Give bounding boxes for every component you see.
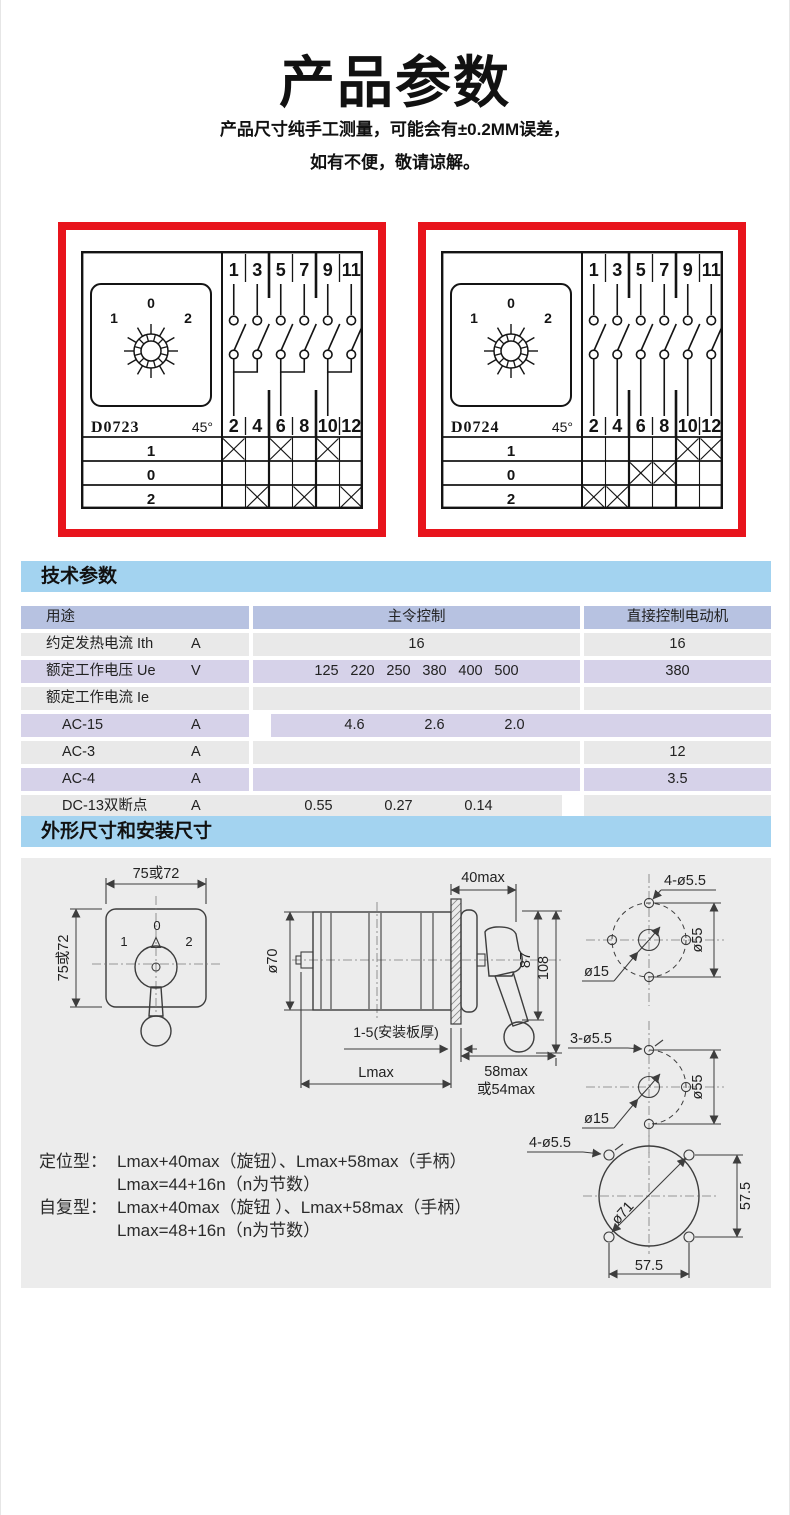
note-formula: Lmax+40max（旋钮）、Lmax+58max（手柄） bbox=[117, 1150, 467, 1173]
top-terminal: 9 bbox=[323, 260, 333, 280]
bottom-terminal: 4 bbox=[252, 416, 262, 436]
note-line-1: 定位型：Lmax+40max（旋钮）、Lmax+58max（手柄） bbox=[39, 1150, 519, 1173]
top-terminal: 11 bbox=[342, 260, 361, 280]
spec-motor-value bbox=[584, 714, 771, 737]
knob-label-0: 0 bbox=[507, 295, 515, 311]
bottom-terminal: 4 bbox=[612, 416, 622, 436]
plate-thickness-note: 1-5(安装板厚) bbox=[353, 1024, 439, 1040]
dim-hole-spacing-v: 57.5 bbox=[738, 1182, 754, 1210]
top-terminal: 11 bbox=[702, 260, 721, 280]
spec-unit: V bbox=[191, 660, 201, 683]
spec-motor-value bbox=[584, 687, 771, 710]
spec-unit: A bbox=[191, 795, 201, 818]
side-view-drawing: ø70 40max 87 108 1-5(安装板厚) Lmax 58max 或5… bbox=[256, 860, 566, 1122]
spec-label: AC-3A bbox=[21, 741, 249, 764]
switching-angle: 45° bbox=[552, 419, 573, 435]
spec-master-values bbox=[253, 768, 580, 791]
dim-body-diameter: ø70 bbox=[265, 949, 281, 974]
handle-ball bbox=[141, 1016, 171, 1046]
label-holes: 4-ø5.5 bbox=[529, 1135, 571, 1151]
top-terminal: 5 bbox=[636, 260, 646, 280]
bottom-terminal: 6 bbox=[636, 416, 646, 436]
top-terminal: 9 bbox=[683, 260, 693, 280]
switch-diagram-D0724: 135791124681012102102D072445° bbox=[441, 251, 723, 509]
spec-table-body: 约定发热电流 IthA1616额定工作电压 UeV125220250380400… bbox=[21, 633, 771, 845]
label-bolt-circle: ø55 bbox=[690, 928, 706, 953]
spec-label: AC-15A bbox=[21, 714, 249, 737]
handle-pivot bbox=[485, 927, 522, 976]
dim-total-height: 108 bbox=[536, 956, 552, 980]
spec-table-header: 用途 主令控制 直接控制电动机 bbox=[21, 606, 771, 629]
label-cutout-diameter: ø71 bbox=[609, 1199, 638, 1228]
spec-unit: A bbox=[191, 633, 201, 656]
spec-row-2: 额定工作电压 UeV125220250380400500380 bbox=[21, 660, 771, 683]
label-holes: 4-ø5.5 bbox=[664, 873, 706, 889]
spec-unit: A bbox=[191, 768, 201, 791]
col-header-usage: 用途 bbox=[21, 606, 249, 629]
front-flange bbox=[461, 910, 477, 1012]
spec-motor-value bbox=[584, 795, 771, 818]
switch-position-label: 2 bbox=[147, 491, 155, 508]
spec-motor-value: 3.5 bbox=[584, 768, 771, 791]
note-formula: Lmax=44+16n（n为节数） bbox=[117, 1173, 320, 1196]
front-view-drawing: 75或72 75或72 1 0 2 bbox=[56, 864, 246, 1069]
note-type-label bbox=[39, 1173, 117, 1196]
spec-motor-value: 16 bbox=[584, 633, 771, 656]
spec-label: AC-4A bbox=[21, 768, 249, 791]
spec-row-5: AC-3A12 bbox=[21, 741, 771, 764]
position-0: 0 bbox=[153, 918, 160, 933]
bottom-terminal: 12 bbox=[341, 416, 361, 436]
switch-position-label: 1 bbox=[147, 443, 155, 460]
top-terminal: 5 bbox=[276, 260, 286, 280]
section-header-tech-params: 技术参数 bbox=[21, 561, 771, 592]
knob-label-2: 2 bbox=[184, 310, 192, 326]
spec-motor-value: 380 bbox=[584, 660, 771, 683]
spec-row-6: AC-4A3.5 bbox=[21, 768, 771, 791]
bottom-terminal: 8 bbox=[659, 416, 669, 436]
knob-label-1: 1 bbox=[470, 310, 478, 326]
spec-row-1: 约定发热电流 IthA1616 bbox=[21, 633, 771, 656]
spec-row-7: DC-13双断点A0.550.270.14 bbox=[21, 795, 771, 818]
subtitle-line-1: 产品尺寸纯手工测量，可能会有±0.2MM误差， bbox=[1, 115, 789, 140]
top-terminal: 1 bbox=[589, 260, 599, 280]
spec-label: 约定发热电流 IthA bbox=[21, 633, 249, 656]
spec-master-values: 16 bbox=[253, 633, 580, 656]
bottom-terminal: 2 bbox=[229, 416, 239, 436]
label-holes: 3-ø5.5 bbox=[570, 1031, 612, 1047]
section-title: 外形尺寸和安装尺寸 bbox=[41, 821, 212, 842]
spec-row-4: AC-15A4.62.62.0 bbox=[21, 714, 771, 737]
spec-unit: A bbox=[191, 714, 201, 737]
mounting-plate bbox=[451, 899, 461, 1024]
top-terminal: 3 bbox=[252, 260, 262, 280]
note-line-2: Lmax=44+16n（n为节数） bbox=[39, 1173, 519, 1196]
spec-master-values: 4.62.62.0 bbox=[271, 714, 598, 737]
spec-master-values bbox=[253, 687, 580, 710]
bottom-terminal: 6 bbox=[276, 416, 286, 436]
spec-label: DC-13双断点A bbox=[21, 795, 249, 818]
dim-handle-height: 87 bbox=[518, 952, 534, 968]
spec-master-values: 125220250380400500 bbox=[253, 660, 580, 683]
spec-row-3: 额定工作电流 Ie bbox=[21, 687, 771, 710]
bottom-terminal: 2 bbox=[589, 416, 599, 436]
note-type-label: 定位型： bbox=[39, 1150, 117, 1173]
label-center-hole: ø15 bbox=[584, 1111, 609, 1127]
length-formula-notes: 定位型：Lmax+40max（旋钮）、Lmax+58max（手柄）Lmax=44… bbox=[39, 1150, 519, 1242]
dim-hole-spacing-h: 57.5 bbox=[635, 1258, 663, 1274]
subtitle-line-2: 如有不便，敬请谅解。 bbox=[1, 148, 789, 173]
note-type-label bbox=[39, 1219, 117, 1242]
switch-body bbox=[313, 912, 451, 1010]
section-title: 技术参数 bbox=[41, 566, 117, 587]
bottom-terminal: 8 bbox=[299, 416, 309, 436]
note-line-4: Lmax=48+16n（n为节数） bbox=[39, 1219, 519, 1242]
bottom-terminal: 12 bbox=[701, 416, 721, 436]
panel-cutout-drawing: ø71 4-ø5.5 57.5 57.5 bbox=[521, 1126, 776, 1288]
label-center-hole: ø15 bbox=[584, 964, 609, 980]
switch-position-label: 1 bbox=[507, 443, 515, 460]
wiring-diagram-d0723: 135791124681012102102D072345° bbox=[58, 222, 386, 537]
switch-position-label: 0 bbox=[507, 467, 515, 484]
dim-width: 75或72 bbox=[133, 865, 180, 882]
top-terminal: 1 bbox=[229, 260, 239, 280]
dim-handle-depth-1: 58max bbox=[484, 1064, 528, 1080]
switch-position-label: 0 bbox=[147, 467, 155, 484]
switch-diagram-D0723: 135791124681012102102D072345° bbox=[81, 251, 363, 509]
page-title: 产品参数 bbox=[1, 38, 789, 119]
bottom-terminal: 10 bbox=[318, 416, 338, 436]
position-1: 1 bbox=[120, 934, 127, 949]
wiring-diagram-d0724: 135791124681012102102D072445° bbox=[418, 222, 746, 537]
note-formula: Lmax+40max（旋钮 ）、Lmax+58max（手柄） bbox=[117, 1196, 471, 1219]
label-bolt-circle: ø55 bbox=[690, 1075, 706, 1100]
mounting-holes-4-drawing: 4-ø5.5 ø15 ø55 bbox=[556, 866, 751, 1011]
dim-knob-depth: 40max bbox=[461, 870, 505, 886]
switching-angle: 45° bbox=[192, 419, 213, 435]
spec-label: 额定工作电压 UeV bbox=[21, 660, 249, 683]
product-parameters-page: 产品参数 产品尺寸纯手工测量，可能会有±0.2MM误差， 如有不便，敬请谅解。 … bbox=[0, 0, 790, 1515]
knob-label-2: 2 bbox=[544, 310, 552, 326]
spec-label: 额定工作电流 Ie bbox=[21, 687, 249, 710]
spec-motor-value: 12 bbox=[584, 741, 771, 764]
top-terminal: 7 bbox=[299, 260, 309, 280]
knob-label-1: 1 bbox=[110, 310, 118, 326]
position-2: 2 bbox=[185, 934, 192, 949]
top-terminal: 3 bbox=[612, 260, 622, 280]
col-header-master-control: 主令控制 bbox=[253, 606, 580, 629]
handle-ball bbox=[504, 1022, 534, 1052]
dim-height: 75或72 bbox=[55, 935, 72, 982]
col-header-motor-control: 直接控制电动机 bbox=[584, 606, 771, 629]
spec-unit: A bbox=[191, 741, 201, 764]
dim-handle-depth-2: 或54max bbox=[477, 1081, 536, 1098]
spec-master-values: 0.550.270.14 bbox=[235, 795, 562, 818]
top-terminal: 7 bbox=[659, 260, 669, 280]
spec-table: 用途 主令控制 直接控制电动机 约定发热电流 IthA1616额定工作电压 Ue… bbox=[21, 606, 771, 849]
switch-position-label: 2 bbox=[507, 491, 515, 508]
section-header-dimensions: 外形尺寸和安装尺寸 bbox=[21, 816, 771, 847]
note-formula: Lmax=48+16n（n为节数） bbox=[117, 1219, 320, 1242]
dim-length: Lmax bbox=[358, 1065, 394, 1081]
note-line-3: 自复型：Lmax+40max（旋钮 ）、Lmax+58max（手柄） bbox=[39, 1196, 519, 1219]
spec-master-values bbox=[253, 741, 580, 764]
model-number: D0723 bbox=[91, 419, 140, 436]
dimension-drawings: 75或72 75或72 1 0 2 bbox=[21, 858, 771, 1288]
knob-label-0: 0 bbox=[147, 295, 155, 311]
note-type-label: 自复型： bbox=[39, 1196, 117, 1219]
handle-lever bbox=[495, 972, 528, 1026]
model-number: D0724 bbox=[451, 419, 500, 436]
bottom-terminal: 10 bbox=[678, 416, 698, 436]
